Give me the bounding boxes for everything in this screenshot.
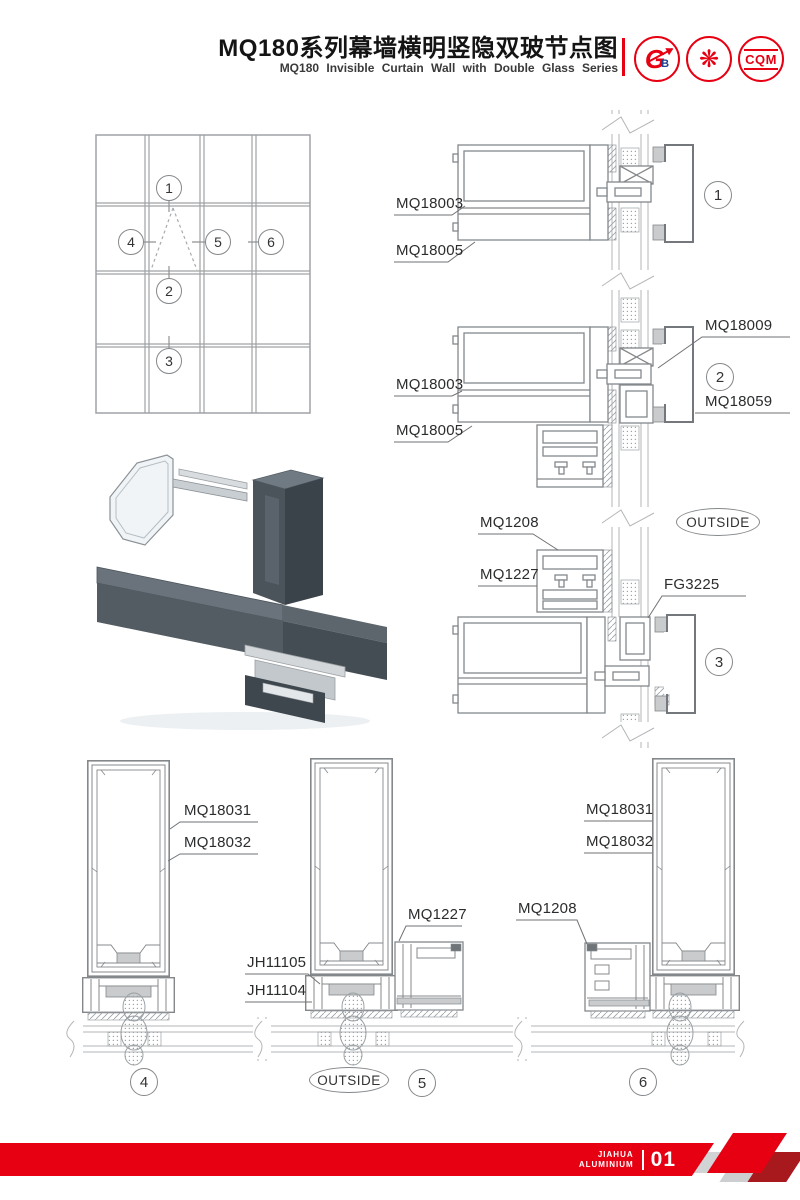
- brand-line1: JIAHUA: [579, 1150, 634, 1159]
- elevation-grid-diagram: [90, 128, 320, 420]
- label-detail5-clip-top: JH11105: [247, 954, 306, 971]
- cqm-text: CQM: [744, 49, 778, 70]
- outside-label-bottom: OUTSIDE: [309, 1067, 389, 1093]
- gtb-certification-logo: GB: [634, 36, 680, 82]
- profile-3d-render: [95, 445, 395, 735]
- brand-line2: ALUMINIUM: [579, 1160, 634, 1169]
- page-title: MQ180系列幕墙横明竖隐双玻节点图: [218, 28, 618, 63]
- section-callout-1: 1: [704, 181, 732, 209]
- catalog-page: MQ180系列幕墙横明竖隐双玻节点图 MQ180 Invisible Curta…: [0, 0, 800, 1200]
- footer-divider: [642, 1150, 644, 1170]
- label-detail1-cover: MQ18005: [396, 242, 463, 259]
- label-mid-transom-bottom: MQ1227: [480, 566, 539, 583]
- section-callout-5: 5: [408, 1069, 436, 1097]
- label-detail6-outer: MQ18031: [586, 801, 653, 818]
- section-callout-4: 4: [130, 1068, 158, 1096]
- label-detail2-block: MQ18059: [705, 393, 772, 410]
- label-detail2-vent: MQ18009: [705, 317, 772, 334]
- page-number: 01: [651, 1148, 676, 1172]
- certification-seal-logo: ❋: [686, 36, 732, 82]
- label-detail1-mullion: MQ18003: [396, 195, 463, 212]
- label-mid-transom-top: MQ1208: [480, 514, 539, 531]
- label-detail2-mullion: MQ18003: [396, 376, 463, 393]
- section-callout-3: 3: [705, 648, 733, 676]
- label-mid-glass: FG3225: [664, 576, 719, 593]
- outside-label-right: OUTSIDE: [676, 508, 760, 536]
- elevation-callout-1: 1: [156, 175, 182, 201]
- label-detail6-inner: MQ18032: [586, 833, 653, 850]
- page-subtitle: MQ180 Invisible Curtain Wall with Double…: [280, 61, 618, 75]
- elevation-callout-6: 6: [258, 229, 284, 255]
- elevation-callout-3: 3: [156, 348, 182, 374]
- elevation-callout-4: 4: [118, 229, 144, 255]
- section-callout-2: 2: [706, 363, 734, 391]
- label-detail2-cover: MQ18005: [396, 422, 463, 439]
- elevation-callout-2: 2: [156, 278, 182, 304]
- gtb-accent-letter: B: [661, 58, 669, 70]
- label-detail6-transom: MQ1208: [518, 900, 577, 917]
- label-detail5-clip-bottom: JH11104: [247, 982, 306, 999]
- cqm-certification-logo: CQM: [738, 36, 784, 82]
- brand-name: JIAHUA ALUMINIUM: [579, 1150, 634, 1168]
- section-callout-6: 6: [629, 1068, 657, 1096]
- elevation-callout-5: 5: [205, 229, 231, 255]
- label-detail4-outer: MQ18031: [184, 802, 251, 819]
- title-divider: [622, 38, 625, 76]
- label-detail4-inner: MQ18032: [184, 834, 251, 851]
- label-detail5-transom: MQ1227: [408, 906, 467, 923]
- footer-band: JIAHUA ALUMINIUM 01: [0, 1143, 714, 1176]
- seal-star-icon: ❋: [699, 45, 719, 74]
